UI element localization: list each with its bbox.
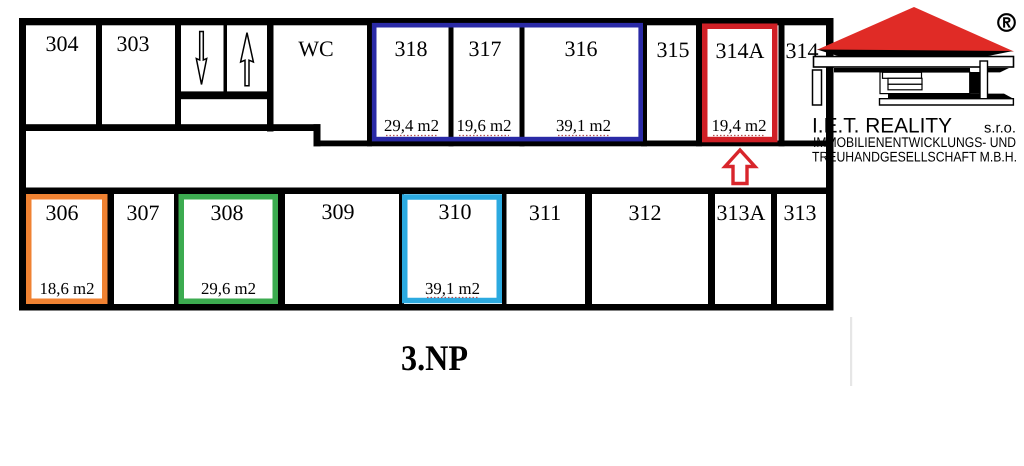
- svg-text:313A: 313A: [717, 200, 766, 225]
- svg-text:19,4 m2: 19,4 m2: [711, 116, 766, 135]
- svg-text:39,1 m2: 39,1 m2: [425, 279, 480, 298]
- svg-text:39,1 m2: 39,1 m2: [556, 116, 611, 135]
- svg-text:315: 315: [657, 37, 690, 62]
- svg-text:18,6 m2: 18,6 m2: [39, 279, 94, 298]
- svg-text:310: 310: [439, 199, 472, 224]
- svg-text:311: 311: [529, 200, 561, 225]
- svg-text:314A: 314A: [716, 38, 765, 63]
- svg-text:317: 317: [469, 36, 502, 61]
- svg-text:19,6 m2: 19,6 m2: [456, 116, 511, 135]
- svg-text:309: 309: [322, 199, 355, 224]
- svg-text:29,6 m2: 29,6 m2: [201, 279, 256, 298]
- svg-text:318: 318: [395, 36, 428, 61]
- svg-text:TREUHANDGESELLSCHAFT M.B.H.: TREUHANDGESELLSCHAFT M.B.H.: [812, 148, 1017, 164]
- svg-text:312: 312: [629, 200, 662, 225]
- svg-text:304: 304: [46, 31, 79, 56]
- svg-text:29,4 m2: 29,4 m2: [384, 116, 439, 135]
- svg-text:306: 306: [46, 200, 79, 225]
- svg-text:WC: WC: [298, 36, 333, 61]
- svg-text:3.NP: 3.NP: [401, 338, 468, 378]
- svg-text:313: 313: [784, 200, 817, 225]
- svg-text:303: 303: [117, 31, 150, 56]
- svg-text:307: 307: [127, 200, 160, 225]
- svg-text:308: 308: [211, 200, 244, 225]
- svg-text:316: 316: [565, 36, 598, 61]
